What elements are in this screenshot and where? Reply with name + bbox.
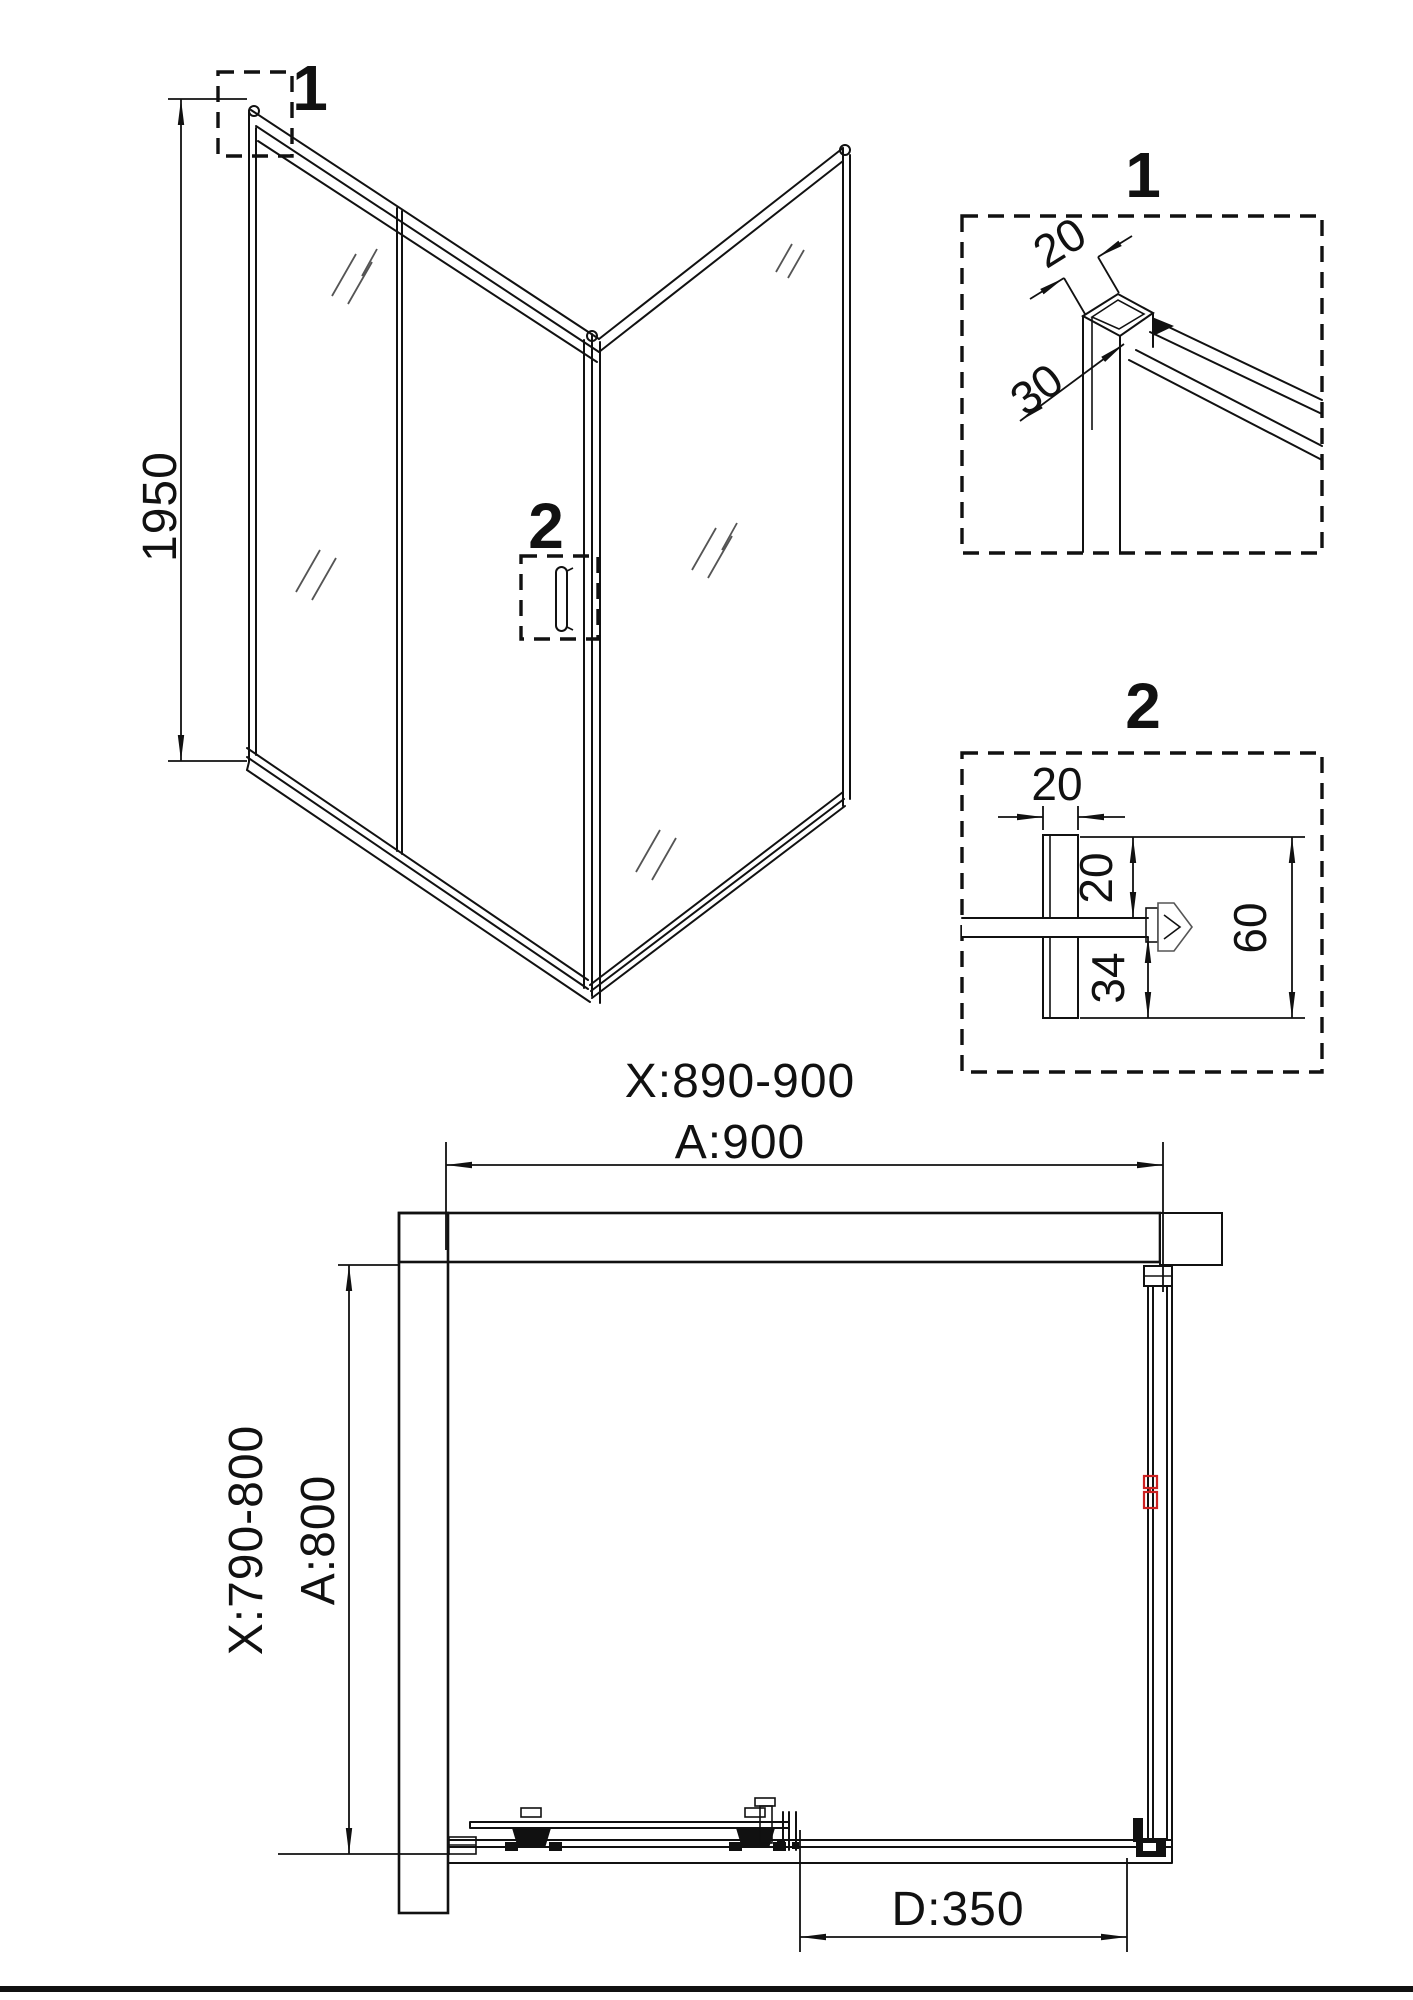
detail-1-glass-panels	[1129, 317, 1322, 460]
plan-door-dimension-label: D:350	[891, 1883, 1024, 1936]
plan-depth-dimension: X:790-800 A:800	[220, 1265, 450, 1854]
technical-drawing: 1 2 1950 1 20	[0, 0, 1413, 2000]
plan-depth-label: A:800	[292, 1475, 345, 1605]
detail-2-top-inset-dimension: 20	[1070, 837, 1133, 918]
detail-2-top-inset-label: 20	[1070, 852, 1122, 903]
detail-2-view: 2 20 20 34	[962, 670, 1322, 1072]
edge-seal-tip	[1158, 903, 1192, 951]
front-bottom-rail	[247, 748, 590, 1002]
plan-sliding-door	[470, 1798, 799, 1851]
detail-2-total-depth-label: 60	[1224, 902, 1276, 953]
detail-2-profile-width-label: 20	[1031, 758, 1082, 810]
plan-width-range-label: X:890-900	[625, 1055, 856, 1108]
detail-2-bottom-inset-dimension: 34	[1082, 937, 1148, 1018]
front-top-rail	[251, 110, 599, 362]
plan-door-dimension: D:350	[800, 1830, 1127, 1952]
height-dimension: 1950	[134, 99, 247, 761]
plan-view: X:890-900 A:900 X:790-800 A:800	[220, 1055, 1222, 1952]
perspective-view: 1 2 1950	[134, 52, 850, 1003]
side-panel-frame	[590, 145, 850, 998]
detail-1-width-label: 20	[1024, 207, 1095, 278]
detail-1-depth-dimension: 30	[1000, 344, 1124, 425]
top-wall-end-block	[1160, 1213, 1222, 1265]
sliding-door-divider	[397, 208, 402, 854]
height-dimension-label: 1950	[134, 451, 187, 562]
glass-seal-wedge	[1152, 317, 1174, 336]
panel-wall-clip-red	[1144, 1476, 1157, 1508]
corner-post	[584, 331, 600, 1003]
drawing-canvas: 1 2 1950 1 20	[0, 0, 1413, 2000]
detail-1-width-dimension: 20	[1024, 207, 1132, 314]
plan-depth-range-label: X:790-800	[220, 1425, 273, 1656]
callout-2-label: 2	[528, 490, 564, 562]
detail-1-profile	[1083, 294, 1153, 552]
detail-2-profile-width-dimension: 20	[998, 758, 1125, 830]
callout-1-label: 1	[292, 52, 328, 124]
detail-1-label: 1	[1125, 139, 1161, 211]
door-end-profile	[777, 1812, 799, 1850]
detail-2-total-depth-dimension: 60	[1224, 837, 1292, 1018]
front-left-frame-post	[247, 106, 259, 770]
top-wall	[399, 1213, 1160, 1262]
page-bottom-border	[0, 1986, 1413, 1992]
detail-2-label: 2	[1125, 670, 1161, 742]
detail-2-bottom-inset-label: 34	[1082, 952, 1134, 1003]
glass-reflection-marks	[296, 244, 804, 880]
plan-width-label: A:900	[675, 1116, 805, 1169]
plan-width-dimension: X:890-900 A:900	[446, 1055, 1163, 1292]
left-wall	[399, 1213, 448, 1913]
detail-1-depth-label: 30	[1000, 353, 1072, 425]
plan-corner-bracket	[1133, 1818, 1166, 1857]
detail-1-view: 1 20 30	[962, 139, 1322, 553]
door-handle	[556, 567, 573, 631]
plan-side-panel	[1144, 1266, 1172, 1840]
door-roller-left	[505, 1808, 562, 1851]
